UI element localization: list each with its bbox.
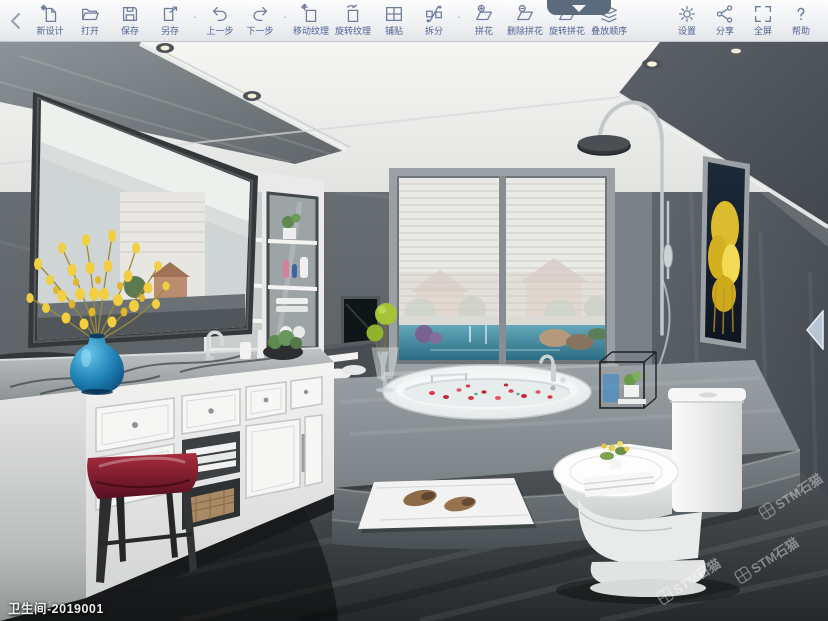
undo-icon: [209, 3, 231, 25]
bathroom-scene: STM石猫 STM石猫 STM石猫: [0, 42, 828, 621]
toolbar: 新设计 打开 保存 另存 · 上一步 下一步 · 移动纹理: [0, 0, 828, 42]
tile-label: 铺贴: [385, 26, 403, 36]
mosaic-delete-label: 删除拼花: [507, 26, 543, 36]
rotate-texture-label: 旋转纹理: [335, 26, 371, 36]
toolbar-right-group: 设置 分享 全屏 帮助: [668, 0, 820, 41]
back-button[interactable]: [4, 0, 30, 41]
settings-label: 设置: [678, 26, 696, 36]
save-as-icon: [159, 3, 181, 25]
share-button[interactable]: 分享: [706, 0, 744, 41]
mosaic-add-label: 拼花: [475, 26, 493, 36]
mosaic-delete-icon: [514, 3, 536, 25]
save-label: 保存: [121, 26, 139, 36]
new-design-button[interactable]: 新设计: [30, 0, 70, 41]
mosaic-add-button[interactable]: 拼花: [464, 0, 504, 41]
fullscreen-button[interactable]: 全屏: [744, 0, 782, 41]
open-button[interactable]: 打开: [70, 0, 110, 41]
share-label: 分享: [716, 26, 734, 36]
wall-artwork: [700, 156, 750, 349]
back-chevron-icon: [5, 9, 29, 33]
fullscreen-label: 全屏: [754, 26, 772, 36]
save-as-button[interactable]: 另存: [150, 0, 190, 41]
stack-order-label: 叠放顺序: [591, 26, 627, 36]
app-window: 新设计 打开 保存 另存 · 上一步 下一步 · 移动纹理: [0, 0, 828, 621]
toolbar-collapse-tab[interactable]: [547, 0, 611, 15]
tile-button[interactable]: 铺贴: [374, 0, 414, 41]
chevron-down-icon: [572, 5, 586, 12]
settings-button[interactable]: 设置: [668, 0, 706, 41]
move-texture-button[interactable]: 移动纹理: [290, 0, 332, 41]
panel-expand-arrow[interactable]: [804, 310, 826, 350]
open-label: 打开: [81, 26, 99, 36]
bath-mat: [358, 478, 537, 533]
share-icon: [714, 3, 736, 25]
undo-label: 上一步: [206, 26, 233, 36]
help-label: 帮助: [792, 26, 810, 36]
rotate-texture-button[interactable]: 旋转纹理: [332, 0, 374, 41]
fullscreen-icon: [752, 3, 774, 25]
open-folder-icon: [79, 3, 101, 25]
undo-button[interactable]: 上一步: [200, 0, 240, 41]
project-label: 卫生间-2019001: [8, 598, 104, 617]
save-icon: [119, 3, 141, 25]
save-button[interactable]: 保存: [110, 0, 150, 41]
move-texture-label: 移动纹理: [293, 26, 329, 36]
tile-icon: [383, 3, 405, 25]
mosaic-delete-button[interactable]: 删除拼花: [504, 0, 546, 41]
redo-label: 下一步: [246, 26, 273, 36]
new-design-label: 新设计: [36, 26, 63, 36]
mosaic-rotate-label: 旋转拼花: [549, 26, 585, 36]
toolbar-separator: ·: [454, 0, 464, 41]
help-icon: [790, 3, 812, 25]
arrow-left-icon: [804, 310, 826, 350]
redo-button[interactable]: 下一步: [240, 0, 280, 41]
toolbar-separator: ·: [280, 0, 290, 41]
redo-icon: [249, 3, 271, 25]
rotate-texture-icon: [342, 3, 364, 25]
save-as-label: 另存: [161, 26, 179, 36]
move-texture-icon: [300, 3, 322, 25]
help-button[interactable]: 帮助: [782, 0, 820, 41]
mosaic-add-icon: [473, 3, 495, 25]
split-button[interactable]: 拆分: [414, 0, 454, 41]
toolbar-separator: ·: [190, 0, 200, 41]
new-design-icon: [39, 3, 61, 25]
split-icon: [423, 3, 445, 25]
split-label: 拆分: [425, 26, 443, 36]
render-canvas[interactable]: STM石猫 STM石猫 STM石猫 卫生间-2019001: [0, 42, 828, 621]
settings-gear-icon: [676, 3, 698, 25]
window: [380, 168, 624, 382]
